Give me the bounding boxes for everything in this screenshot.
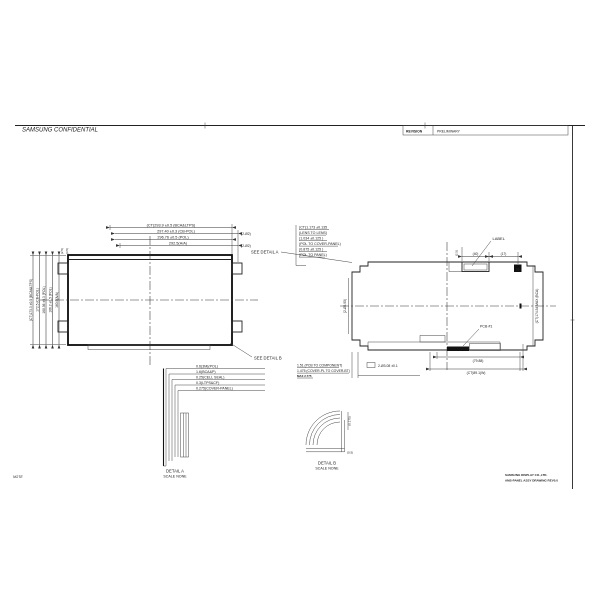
- see-detail-a-note: SEE DETAIL A: [251, 250, 279, 255]
- note-line: MAX 2.775: [297, 374, 312, 378]
- detail-a-scale: SCALE NONE: [163, 475, 187, 479]
- layer-label: 0.275(COVER-PANEL): [196, 387, 233, 391]
- revision-label: REVISION: [406, 129, 423, 133]
- strip-step: [420, 336, 445, 343]
- label-inner: [464, 264, 487, 270]
- cad-drawing: SAMSUNG CONFIDENTIAL NOTE REVISION PRELI…: [0, 0, 600, 600]
- confidential-stamp: SAMSUNG CONFIDENTIAL: [22, 128, 98, 134]
- thickness-callout: SEE DETAIL A (CT)1.173 ±0.135 (LENS TO L…: [251, 225, 352, 266]
- rear-stack-notes: 1.51 (PCB TO COMPONENT) 1.475 (COVER-PL …: [297, 364, 350, 379]
- label-callout: LABEL: [493, 236, 506, 241]
- callout-line: (LENS TO LENS): [299, 231, 327, 235]
- connector: [470, 344, 501, 351]
- callout-line: (0.875 ±0.125 ): [299, 248, 323, 252]
- doc-number-line2: AMS-PANEL ASSY DRAWING REV0.0: [505, 479, 558, 483]
- dim-label: (CT)89.1(W): [467, 371, 486, 375]
- detail-a-title: DETAIL A: [166, 469, 184, 474]
- sheet-frame: SAMSUNG CONFIDENTIAL NOTE REVISION PRELI…: [13, 123, 585, 490]
- dim-label: 292.5(A/A): [169, 241, 188, 245]
- layer-label: 0.3(LTPS&CF): [196, 381, 219, 385]
- dim-label: (17): [501, 252, 507, 256]
- label-recess: [449, 262, 462, 272]
- pcb-bar: [447, 347, 469, 352]
- note-label: NOTE: [13, 475, 23, 479]
- dim-label: (CT)173.3 ±0.5 (BCA&LTPS): [29, 279, 33, 321]
- dim-label: (3.5): [65, 248, 69, 254]
- note-line: 1.475 (COVER-PL TO COVER-BT): [297, 369, 350, 373]
- drawing-sheet: SAMSUNG CONFIDENTIAL NOTE REVISION PRELI…: [0, 0, 600, 600]
- hole-dim-label: 2-Ø3.08 ±0.1: [378, 364, 398, 368]
- dim-label: 296.76 ±0.5 (POL): [157, 235, 189, 239]
- rear-bottom-dimensions: (79.88) (CT)89.1(W) 2-Ø3.08 ±0.1: [352, 344, 523, 378]
- centerline-mark: [520, 304, 522, 309]
- mount-tab: [58, 321, 68, 332]
- dim-label: (79.88): [473, 359, 484, 363]
- dim-label: (0.175): [348, 416, 352, 426]
- rear-bottom-strip: PCB #1: [368, 325, 501, 352]
- polarity-mark-glyph: H: [516, 267, 519, 272]
- detail-a: 0.6(3M)(POL) 1.6(BCA&P) 0.25(CELL SEAL) …: [163, 365, 265, 479]
- layer-label: 0.6(3M)(POL): [196, 365, 218, 369]
- dim-label: 160.9(A/A): [55, 292, 59, 308]
- callout-line: (POL TO COVER-PANEL): [299, 242, 341, 246]
- height-dim-label: (CT)174.54 MAX (BCA): [535, 289, 539, 324]
- detail-b: (0.175) (0.5) DETAIL B SCALE NONE: [306, 411, 353, 471]
- dim-label: 168.56 ±0.3 (POL): [42, 286, 46, 313]
- note-line: 1.51 (PCB TO COMPONENT): [297, 364, 342, 368]
- layer-label: 1.6(BCA&P): [196, 370, 216, 374]
- revision-box: [403, 126, 568, 136]
- dim-label: 166.2 ±0.5 (POL): [48, 287, 52, 312]
- dim-label: 297.40 ±0.3 (CB-POL): [157, 229, 195, 233]
- revision-value: PRELIMINARY: [437, 129, 461, 133]
- mount-tab: [58, 263, 68, 274]
- dim-label: (0.5): [347, 451, 353, 455]
- dim-label: (2.5): [60, 248, 64, 254]
- left-dim-label: (2-Ø3.05): [343, 299, 347, 313]
- dim-label: (40): [473, 252, 479, 256]
- cover-bottom-block: [181, 413, 189, 457]
- callout-line: (POL TO PANEL): [299, 253, 327, 257]
- dim-label: (2-Ø2): [241, 232, 251, 236]
- dim-label: (2-Ø2): [241, 244, 251, 248]
- layer-label: 0.25(CELL SEAL): [196, 376, 224, 380]
- front-view: (CT)293.9 ±0.5 (BCA&LTPS) 297.40 ±0.3 (C…: [29, 223, 282, 365]
- leader-line: [230, 343, 252, 357]
- dim-label: (2.5): [455, 250, 459, 256]
- layer-stack: [164, 369, 189, 467]
- mount-tab: [232, 321, 242, 332]
- datum-box: [367, 363, 375, 368]
- front-top-dimensions: (CT)293.9 ±0.5 (BCA&LTPS) 297.40 ±0.3 (C…: [110, 223, 251, 262]
- doc-number-line1: SAMSUNG DISPLAY CO.,LTD.: [505, 473, 547, 477]
- rear-top-dimensions: (40) (17) (2.5): [455, 247, 519, 264]
- see-detail-b-note: SEE DETAIL B: [254, 356, 282, 361]
- mount-tab: [232, 263, 242, 274]
- front-left-dimensions: (CT)173.3 ±0.5 (BCA&LTPS) 172.5 (CB-POL)…: [29, 248, 69, 345]
- detail-b-scale: SCALE NONE: [315, 467, 339, 471]
- dim-label: 172.5 (CB-POL): [35, 288, 39, 312]
- pcb-callout: PCB #1: [480, 325, 492, 329]
- callout-line: (CT)1.173 ±0.135: [299, 226, 327, 230]
- rear-view: LABEL (40) (17) (2.5) H (CT)174.54 MAX (…: [297, 236, 556, 378]
- detail-b-title: DETAIL B: [318, 461, 336, 466]
- dim-label: (CT)293.9 ±0.5 (BCA&LTPS): [147, 223, 196, 227]
- callout-line: (1.034 ±0.125 ): [299, 237, 323, 241]
